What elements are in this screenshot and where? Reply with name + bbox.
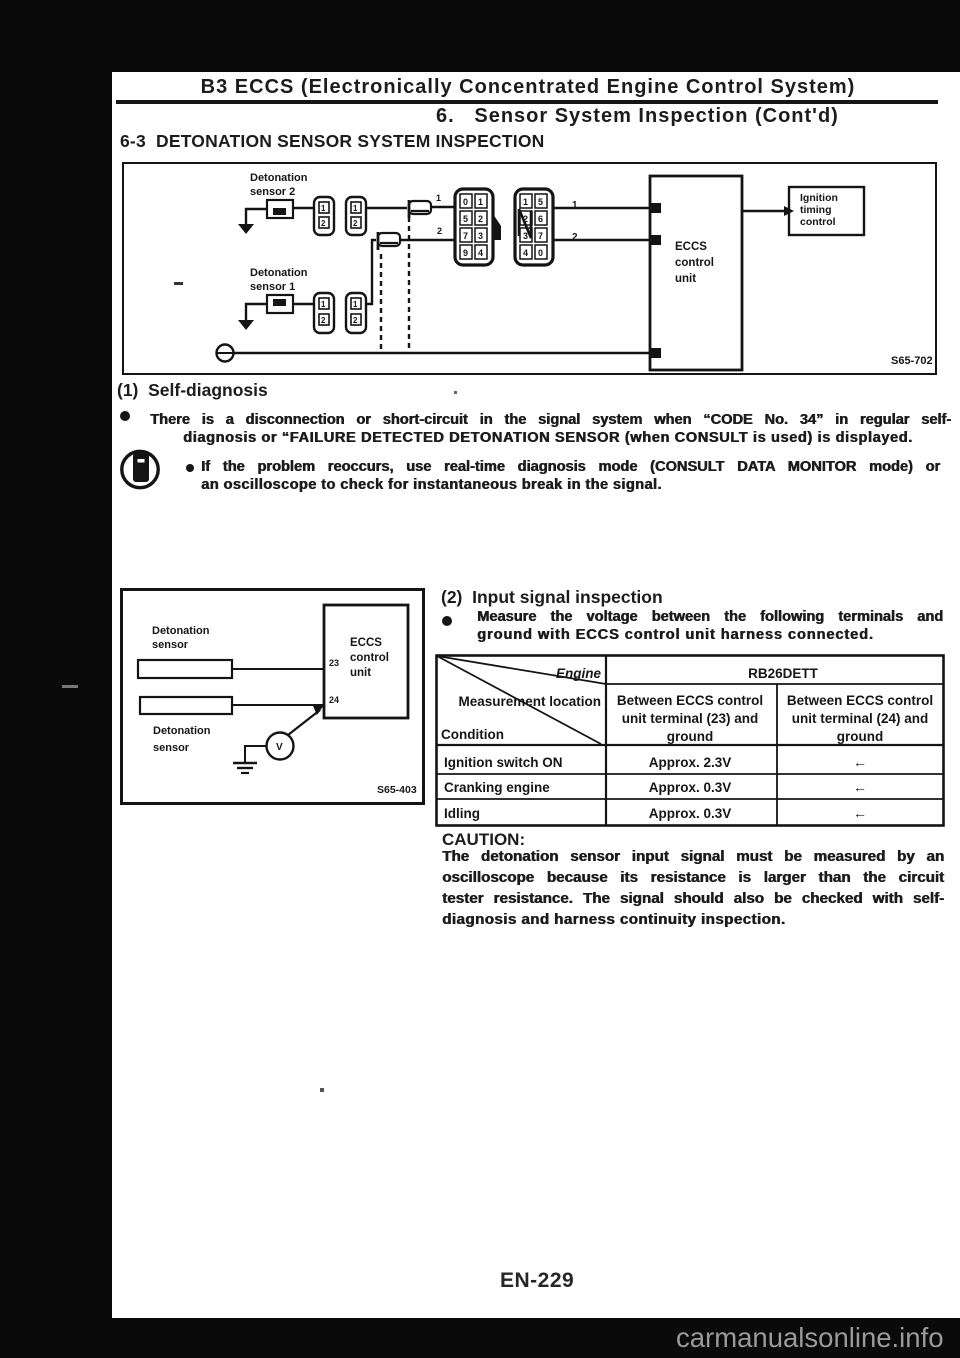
svg-text:V: V [276, 742, 283, 753]
svg-text:3: 3 [478, 231, 483, 241]
svg-text:unit terminal (23) and: unit terminal (23) and [622, 711, 759, 726]
svg-text:Cranking engine: Cranking engine [444, 780, 550, 795]
svg-text:3: 3 [523, 231, 528, 241]
svg-text:2: 2 [353, 316, 358, 325]
svg-text:2: 2 [437, 226, 442, 236]
svg-text:S65-403: S65-403 [377, 784, 417, 796]
svg-text:2: 2 [321, 316, 326, 325]
svg-text:RB26DETT: RB26DETT [748, 666, 819, 681]
svg-text:sensor 1: sensor 1 [250, 281, 295, 293]
svg-text:1: 1 [572, 200, 578, 211]
svg-text:timing: timing [800, 204, 832, 216]
svg-text:Approx. 0.3V: Approx. 0.3V [649, 780, 732, 795]
svg-text:Detonation: Detonation [153, 725, 211, 737]
svg-text:1: 1 [321, 204, 326, 213]
svg-text:2: 2 [523, 214, 528, 224]
svg-text:ECCS: ECCS [675, 241, 707, 253]
svg-text:6: 6 [538, 214, 543, 224]
svg-text:2: 2 [478, 214, 483, 224]
svg-text:control: control [675, 257, 714, 269]
svg-text:←: ← [853, 754, 867, 770]
svg-text:7: 7 [463, 231, 468, 241]
svg-text:control: control [800, 216, 836, 228]
svg-text:0: 0 [538, 248, 543, 258]
svg-text:ECCS: ECCS [350, 637, 382, 649]
svg-text:5: 5 [463, 214, 468, 224]
svg-text:ground: ground [667, 729, 714, 744]
svg-text:2: 2 [321, 219, 326, 228]
svg-text:23: 23 [329, 658, 339, 668]
svg-text:1: 1 [436, 193, 441, 203]
svg-text:1: 1 [321, 300, 326, 309]
svg-text:24: 24 [329, 695, 339, 705]
svg-text:1: 1 [478, 197, 483, 207]
svg-text:sensor 2: sensor 2 [250, 186, 295, 198]
svg-text:←: ← [853, 779, 867, 795]
svg-text:Approx. 0.3V: Approx. 0.3V [649, 806, 732, 821]
svg-text:9: 9 [463, 248, 468, 258]
svg-text:unit: unit [675, 273, 696, 285]
svg-text:2: 2 [572, 232, 578, 243]
svg-text:Measurement location: Measurement location [458, 694, 601, 709]
svg-text:Between ECCS control: Between ECCS control [617, 693, 763, 708]
svg-text:Condition: Condition [441, 727, 504, 742]
svg-text:Engine: Engine [556, 666, 601, 681]
svg-text:Idling: Idling [444, 806, 480, 821]
svg-text:unit terminal (24) and: unit terminal (24) and [792, 711, 929, 726]
svg-text:sensor: sensor [153, 742, 190, 754]
svg-text:1: 1 [523, 197, 528, 207]
svg-text:Detonation: Detonation [250, 172, 308, 184]
svg-text:4: 4 [478, 248, 483, 258]
svg-text:4: 4 [523, 248, 528, 258]
svg-text:sensor: sensor [152, 639, 189, 651]
svg-text:Ignition: Ignition [800, 192, 838, 204]
svg-text:Approx. 2.3V: Approx. 2.3V [649, 755, 732, 770]
svg-text:Detonation: Detonation [250, 267, 308, 279]
svg-text:control: control [350, 652, 389, 664]
svg-text:←: ← [853, 805, 867, 821]
svg-text:unit: unit [350, 667, 371, 679]
svg-text:5: 5 [538, 197, 543, 207]
svg-text:1: 1 [353, 204, 358, 213]
svg-text:0: 0 [463, 197, 468, 207]
svg-text:1: 1 [353, 300, 358, 309]
svg-text:Detonation: Detonation [152, 625, 210, 637]
svg-text:ground: ground [837, 729, 884, 744]
svg-text:7: 7 [538, 231, 543, 241]
svg-text:Ignition switch ON: Ignition switch ON [444, 755, 563, 770]
svg-text:2: 2 [353, 219, 358, 228]
svg-text:Between ECCS control: Between ECCS control [787, 693, 933, 708]
svg-text:S65-702: S65-702 [891, 355, 933, 367]
